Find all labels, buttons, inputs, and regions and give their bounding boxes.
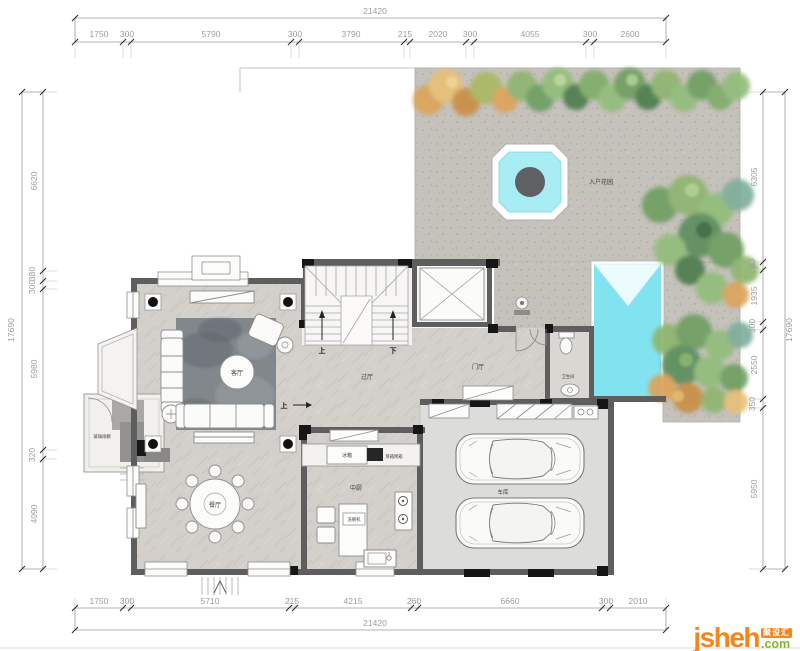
label-fridge: 冰箱	[342, 452, 352, 459]
label-garage: 车库	[497, 488, 509, 496]
dim-right-2: 1935	[749, 286, 759, 305]
dim-right-6: 5950	[749, 479, 759, 498]
page-divider	[0, 647, 800, 649]
watermark-logo: jsheh 聚设汇 .com	[693, 626, 792, 650]
label-entry-garden: 入户花园	[589, 178, 613, 186]
label-foyer: 门厅	[472, 363, 484, 371]
elevator	[420, 268, 484, 320]
fountain	[492, 144, 568, 220]
dim-top-7: 300	[463, 29, 477, 39]
right-dimension-labels: 6305 300 1935 300 2550 350 5950 17690	[747, 167, 794, 498]
dim-left-total: 17690	[6, 318, 16, 342]
dim-right-3: 300	[747, 319, 757, 333]
dim-right-0: 6305	[749, 167, 759, 186]
dim-bottom-8: 2010	[629, 596, 648, 606]
dim-bottom-3: 215	[285, 596, 299, 606]
dim-bottom-6: 6660	[501, 596, 520, 606]
dim-top-3: 300	[288, 29, 302, 39]
dim-top-total: 21420	[363, 6, 387, 16]
bottom-dimension-labels: 1750 300 5710 215 4215 260 6660 300 2010…	[90, 596, 648, 628]
dim-top-9: 300	[583, 29, 597, 39]
label-stairs-up: 上	[319, 346, 326, 355]
dim-bottom-1: 300	[120, 596, 134, 606]
dim-left-3: 5980	[29, 359, 39, 378]
dim-bottom-4: 4215	[344, 596, 363, 606]
label-kitchen: 中厨	[350, 484, 362, 492]
dim-bottom-7: 300	[599, 596, 613, 606]
dim-top-4: 3790	[342, 29, 361, 39]
floor-plan-canvas: 入户花园	[0, 0, 800, 651]
label-entry-up: 上	[281, 401, 288, 410]
dim-top-2: 5790	[202, 29, 221, 39]
dim-left-4: 320	[27, 448, 37, 462]
dim-left-2: 300	[27, 280, 37, 294]
dim-top-8: 4055	[521, 29, 540, 39]
dim-bottom-total: 21420	[363, 618, 387, 628]
logo-brand-text: jsheh	[693, 626, 759, 650]
top-dimension-labels: 1750 300 5790 300 3790 215 2020 300 4055…	[90, 6, 640, 39]
dim-left-1: 380	[27, 267, 37, 281]
label-living-room: 客厅	[231, 369, 243, 377]
dim-top-10: 2600	[621, 29, 640, 39]
dim-top-0: 1750	[90, 29, 109, 39]
dim-right-total: 17690	[784, 318, 794, 342]
dim-left-0: 6620	[29, 171, 39, 190]
label-bathroom: 卫生间	[562, 373, 575, 380]
left-dimension-labels: 6620 380 300 5980 320 4090 17690	[6, 171, 39, 523]
dim-left-5: 4090	[29, 504, 39, 523]
dim-top-6: 2020	[429, 29, 448, 39]
floor-plan-page: 入户花园	[0, 0, 800, 651]
dim-right-1: 300	[747, 259, 757, 273]
dim-right-5: 350	[747, 397, 757, 411]
label-hall: 过厅	[361, 373, 373, 381]
dim-top-5: 215	[398, 29, 412, 39]
dim-bottom-5: 260	[407, 596, 421, 606]
label-stairs-down: 下	[390, 347, 397, 355]
dim-right-4: 2550	[749, 355, 759, 374]
logo-tld: .com	[761, 638, 790, 651]
label-dishwasher: 洗碗机	[348, 516, 362, 523]
label-oven: 蒸箱烤箱	[385, 453, 403, 460]
south-steps	[202, 577, 238, 595]
label-dining-room: 餐厅	[209, 501, 221, 509]
dim-bottom-0: 1750	[90, 596, 109, 606]
label-canopy: 玻璃雨棚	[93, 433, 110, 440]
dim-top-1: 300	[120, 29, 134, 39]
dim-bottom-2: 5710	[201, 596, 220, 606]
